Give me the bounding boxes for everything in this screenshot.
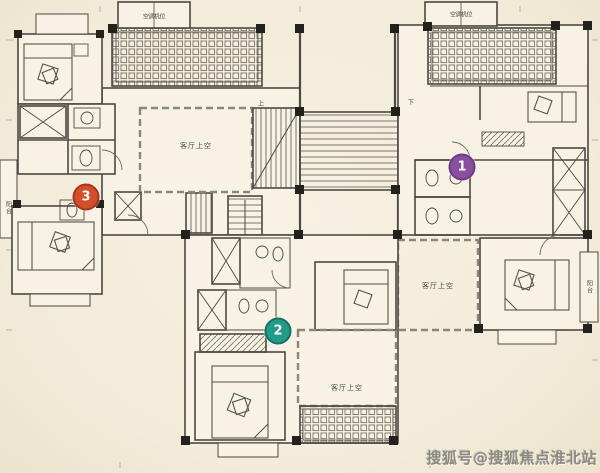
unit-1-block — [398, 2, 598, 344]
unit-marker-3: 3 — [73, 184, 100, 211]
unit-marker-1: 1 — [449, 154, 476, 181]
watermark: 搜狐号@搜狐焦点淮北站 — [426, 447, 597, 468]
unit-marker-3-number: 3 — [81, 191, 90, 204]
floor-plan-drawing — [0, 0, 600, 473]
unit-marker-1-number: 1 — [457, 161, 466, 174]
unit-marker-2-number: 2 — [273, 325, 282, 338]
floor-plan: 空调机位 空调机位 客厅上空 客厅上空 客厅上空 阳台 阳台 上 下 1 2 3… — [0, 0, 600, 473]
unit-marker-2: 2 — [265, 318, 292, 345]
unit-2-block — [185, 235, 398, 457]
